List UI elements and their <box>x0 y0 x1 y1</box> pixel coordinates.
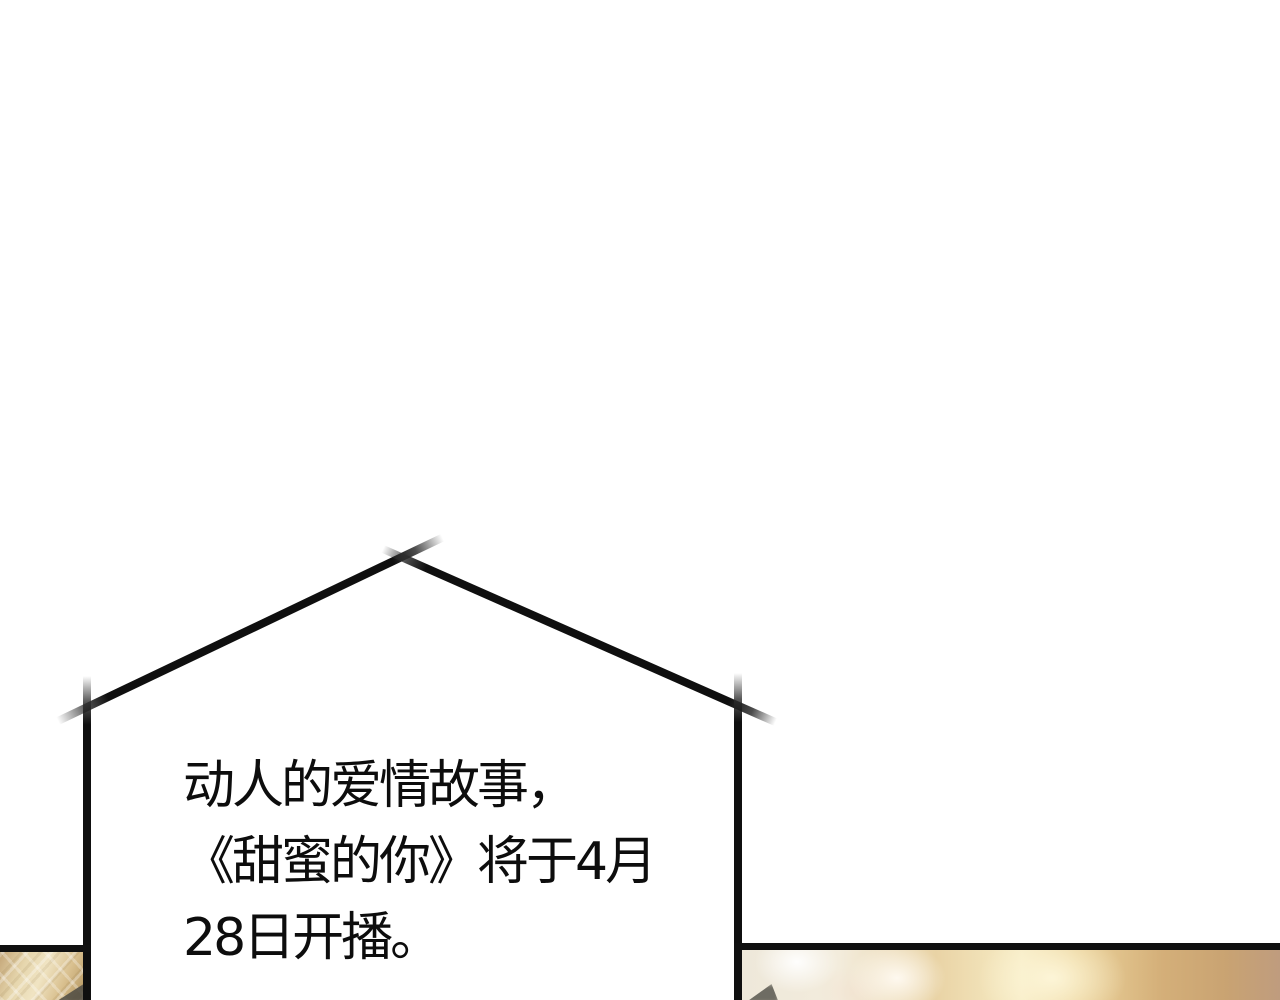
next-panel-artwork-right <box>742 950 1280 1000</box>
house-roof-left-line <box>56 534 444 725</box>
house-roof-right-line <box>381 545 777 725</box>
webtoon-panel: 动人的爱情故事， 《甜蜜的你》将于4月 28日开播。 <box>0 0 1280 1000</box>
caption-line-3: 28日开播。 <box>183 900 703 976</box>
caption-line-2: 《甜蜜的你》将于4月 <box>183 824 703 900</box>
house-wall-right-line <box>734 673 742 1000</box>
next-panel-top-border-right <box>734 943 1280 950</box>
caption-text: 动人的爱情故事， 《甜蜜的你》将于4月 28日开播。 <box>183 748 703 976</box>
rooftop-silhouette-left <box>54 982 83 1000</box>
next-panel-top-border-left <box>0 945 91 952</box>
rooftop-silhouette-right <box>745 984 779 1000</box>
caption-line-1: 动人的爱情故事， <box>183 748 703 824</box>
next-panel-artwork-left <box>0 952 83 1000</box>
